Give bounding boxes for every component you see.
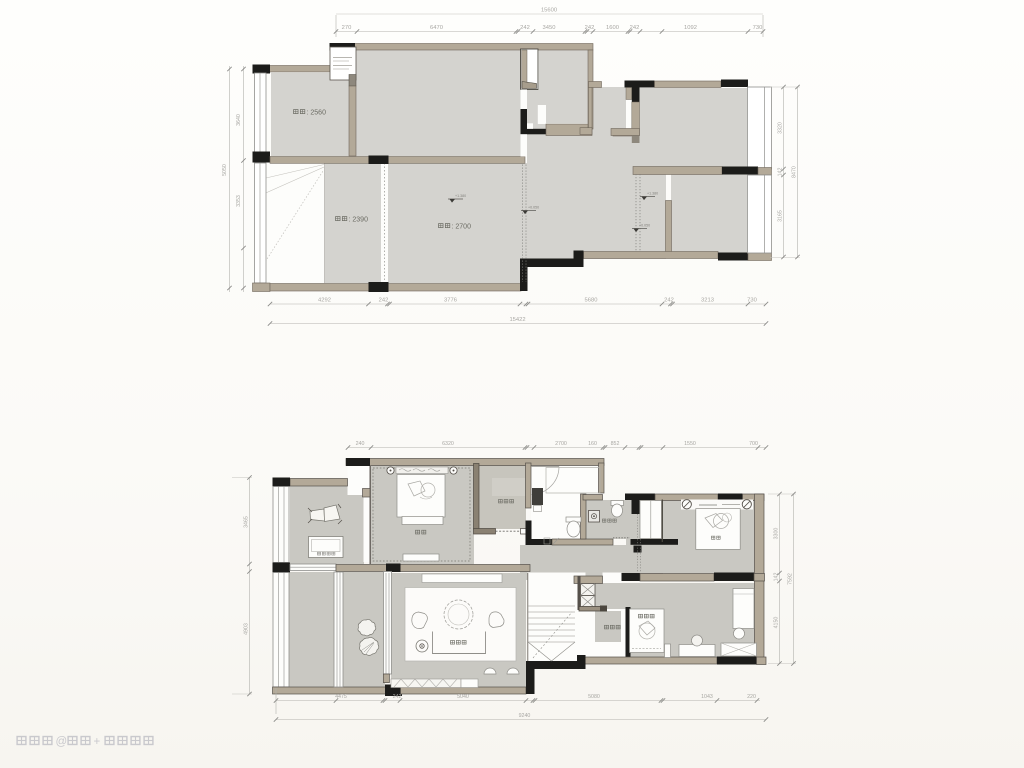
svg-text:1043: 1043 (701, 694, 713, 700)
svg-text:242: 242 (379, 298, 389, 304)
svg-text:: 2560: : 2560 (307, 109, 327, 116)
svg-text:+1.380: +1.380 (647, 192, 658, 196)
svg-text:700: 700 (749, 441, 758, 447)
svg-text:8470: 8470 (792, 166, 798, 178)
svg-text:242: 242 (630, 25, 640, 31)
svg-text:: 2700: : 2700 (452, 223, 472, 230)
svg-text:+0.050: +0.050 (528, 206, 539, 210)
svg-text:15422: 15422 (509, 317, 525, 323)
svg-text:4903: 4903 (244, 623, 250, 635)
svg-text:1550: 1550 (684, 441, 696, 447)
svg-text:852: 852 (611, 441, 620, 447)
svg-text:3776: 3776 (444, 298, 457, 304)
svg-text:5080: 5080 (588, 694, 600, 700)
svg-text:7592: 7592 (788, 573, 794, 585)
svg-text:3300: 3300 (774, 528, 780, 540)
svg-text:+1.380: +1.380 (455, 194, 466, 198)
svg-text:730: 730 (753, 25, 763, 31)
svg-text:1092: 1092 (684, 25, 697, 31)
svg-text:3465: 3465 (244, 516, 250, 528)
svg-text:6470: 6470 (430, 25, 443, 31)
svg-text:142: 142 (778, 168, 784, 177)
svg-text:5040: 5040 (457, 694, 469, 700)
svg-text:142: 142 (774, 573, 780, 582)
svg-text:242: 242 (520, 25, 530, 31)
svg-text:3450: 3450 (543, 25, 556, 31)
svg-text:+: + (94, 736, 101, 748)
svg-text:3213: 3213 (701, 298, 714, 304)
svg-text:5680: 5680 (585, 298, 598, 304)
svg-text:9240: 9240 (519, 713, 531, 719)
svg-text:240: 240 (356, 441, 365, 447)
svg-text:4292: 4292 (318, 298, 331, 304)
svg-text:3320: 3320 (778, 122, 784, 134)
svg-text:1600: 1600 (606, 25, 619, 31)
svg-text:160: 160 (588, 441, 597, 447)
svg-text:242: 242 (585, 25, 595, 31)
svg-text:2700: 2700 (555, 441, 567, 447)
svg-text:242: 242 (393, 694, 402, 700)
svg-text:270: 270 (342, 25, 352, 31)
svg-text:@: @ (56, 736, 68, 748)
svg-text:220: 220 (747, 694, 756, 700)
svg-text:15600: 15600 (541, 8, 557, 14)
svg-text:242: 242 (664, 298, 674, 304)
svg-text:4150: 4150 (774, 617, 780, 629)
svg-text:4475: 4475 (335, 694, 347, 700)
svg-text:6320: 6320 (442, 441, 454, 447)
svg-text:5050: 5050 (222, 164, 228, 176)
svg-text:3353: 3353 (236, 195, 242, 207)
svg-text:+0.050: +0.050 (639, 224, 650, 228)
svg-text:3640: 3640 (236, 114, 242, 126)
svg-text:: 2390: : 2390 (349, 216, 369, 223)
svg-text:3165: 3165 (778, 210, 784, 222)
svg-text:730: 730 (747, 298, 757, 304)
